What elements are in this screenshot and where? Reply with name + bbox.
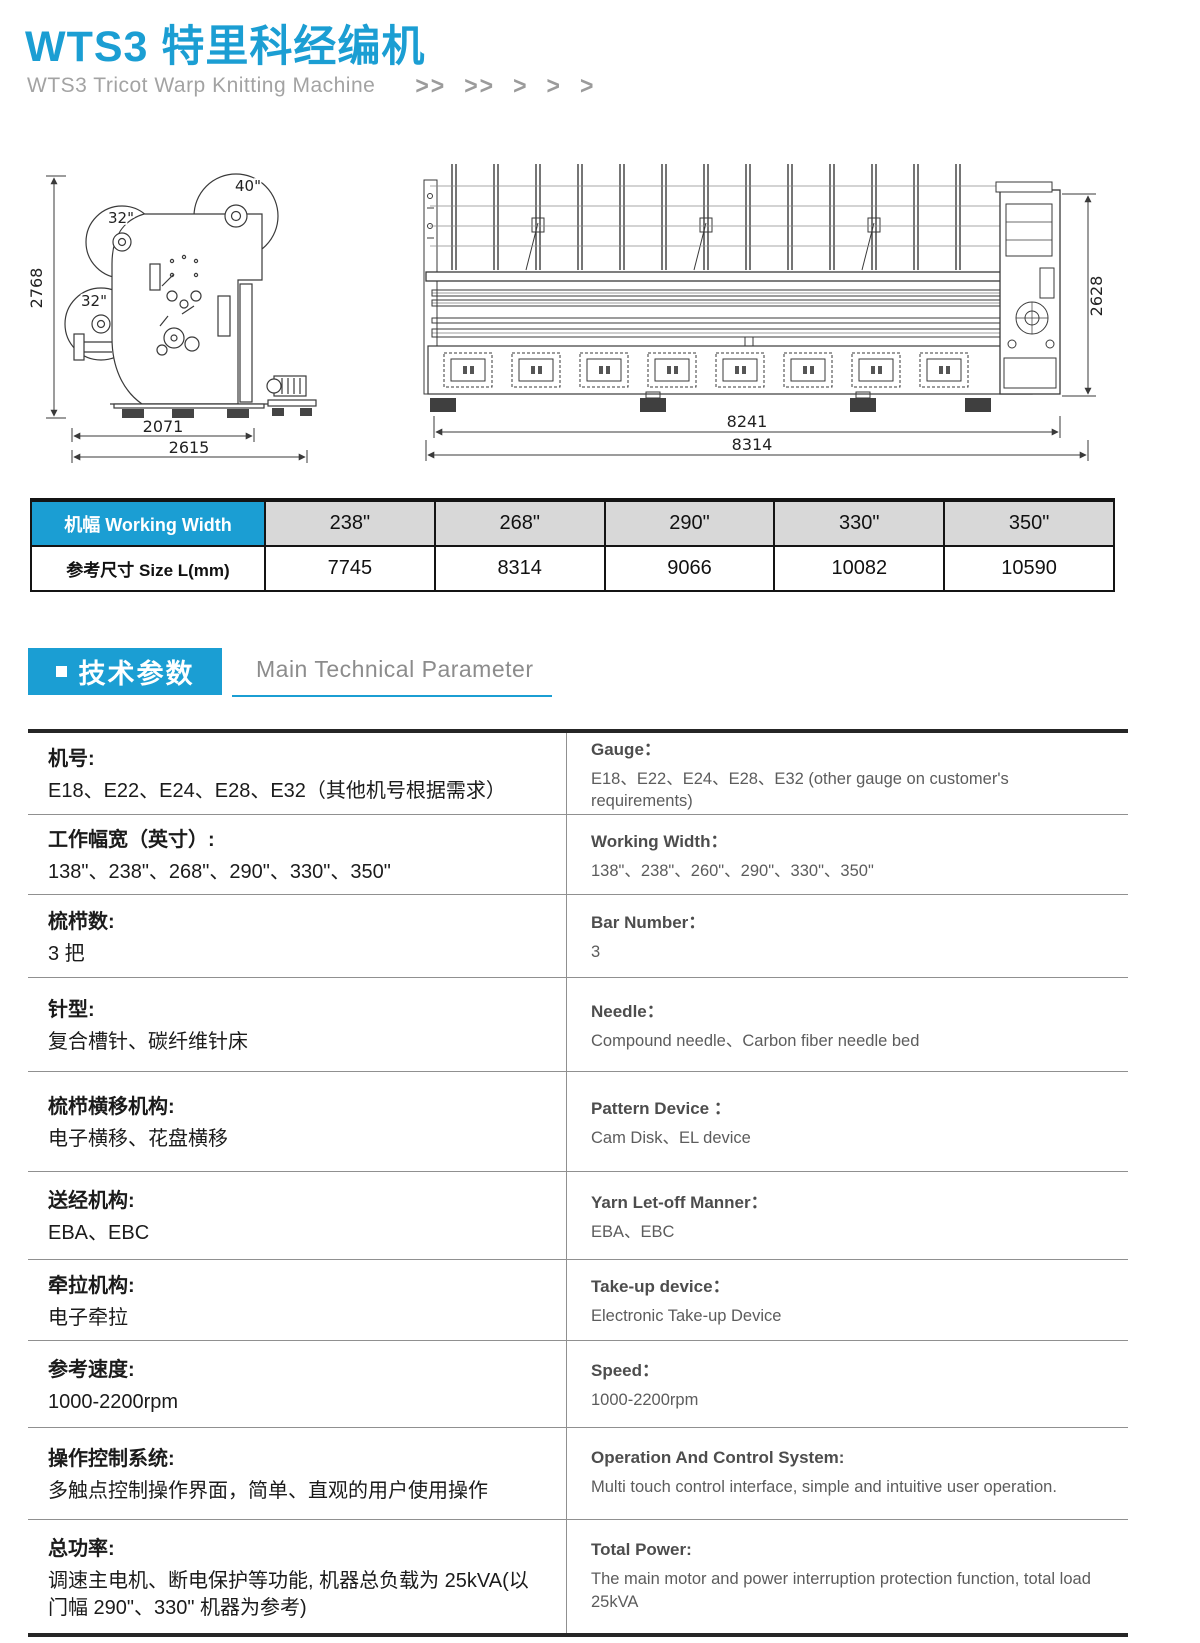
table-row: 送经机构: EBA、EBC Yarn Let-off Manner： EBA、E…: [28, 1172, 1128, 1260]
param-value-zh: 3 把: [48, 941, 540, 968]
param-label-en: Needle：: [591, 997, 1114, 1022]
param-cell-zh: 送经机构: EBA、EBC: [28, 1172, 567, 1259]
param-value-en: Electronic Take-up Device: [591, 1305, 1114, 1327]
size-value: 7745: [264, 547, 434, 590]
param-label-zh: 参考速度:: [48, 1353, 540, 1382]
param-value-zh: 138"、238"、268"、290"、330"、350": [48, 859, 540, 886]
param-label-en: Bar Number：: [591, 908, 1114, 933]
table-row: 操作控制系统: 多触点控制操作界面，简单、直观的用户使用操作 Operation…: [28, 1428, 1128, 1520]
param-cell-zh: 参考速度: 1000-2200rpm: [28, 1341, 567, 1427]
catalog-page: WTS3 特里科经编机 WTS3 Tricot Warp Knitting Ma…: [0, 0, 1200, 1643]
param-label-zh: 梳栉数:: [48, 905, 540, 934]
param-label-en: Total Power:: [591, 1540, 1114, 1560]
page-title: WTS3 特里科经编机: [25, 12, 425, 74]
chevron-right-icon: >: [513, 71, 528, 101]
table-row: 牵拉机构: 电子牵拉 Take-up device： Electronic Ta…: [28, 1260, 1128, 1341]
working-width-table: 机幅 Working Width 238" 268" 290" 330" 350…: [30, 498, 1115, 592]
working-width-value: 330": [773, 502, 943, 545]
technical-parameter-table: 机号: E18、E22、E24、E28、E32（其他机号根据需求） Gauge：…: [28, 729, 1128, 1637]
beam-size-label: 40": [235, 177, 261, 195]
param-label-en: Working Width：: [591, 827, 1114, 852]
param-value-zh: EBA、EBC: [48, 1220, 540, 1247]
chevron-right-icon: >: [580, 71, 595, 101]
param-value-zh: 电子牵拉: [48, 1305, 540, 1332]
size-row-header: 参考尺寸 Size L(mm): [32, 547, 264, 590]
param-cell-zh: 总功率: 调速主电机、断电保护等功能, 机器总负载为 25kVA(以门幅 290…: [28, 1520, 567, 1633]
chevron-right-icon: >>: [464, 71, 495, 101]
param-cell-zh: 操作控制系统: 多触点控制操作界面，简单、直观的用户使用操作: [28, 1428, 567, 1519]
param-value-zh: 1000-2200rpm: [48, 1389, 540, 1416]
dimension-label-width-inner: 8241: [727, 412, 768, 431]
param-value-zh: 电子横移、花盘横移: [48, 1126, 540, 1153]
dimension-label-width-inner: 2071: [143, 417, 184, 436]
param-value-en: Multi touch control interface, simple an…: [591, 1476, 1114, 1498]
param-value-en: EBA、EBC: [591, 1221, 1114, 1243]
param-cell-en: Take-up device： Electronic Take-up Devic…: [567, 1260, 1128, 1340]
param-cell-zh: 牵拉机构: 电子牵拉: [28, 1260, 567, 1340]
page-subtitle: WTS3 Tricot Warp Knitting Machine: [27, 74, 375, 98]
param-value-zh: 多触点控制操作界面，简单、直观的用户使用操作: [48, 1478, 540, 1505]
dimension-label-height: 2768: [27, 268, 46, 309]
param-label-en: Speed：: [591, 1356, 1114, 1381]
param-cell-en: Bar Number： 3: [567, 895, 1128, 977]
table-row: 针型: 复合槽针、碳纤维针床 Needle： Compound needle、C…: [28, 978, 1128, 1072]
param-cell-zh: 工作幅宽（英寸）: 138"、238"、268"、290"、330"、350": [28, 815, 567, 894]
param-label-en: Gauge：: [591, 735, 1114, 760]
side-view-diagram: 40" 32" 32" 2768 2071 2615: [22, 146, 374, 471]
param-value-en: Cam Disk、EL device: [591, 1127, 1114, 1149]
beam-size-label: 32": [81, 292, 107, 310]
working-width-value: 350": [943, 502, 1113, 545]
param-label-zh: 工作幅宽（英寸）:: [48, 823, 540, 852]
param-label-en: Yarn Let-off Manner：: [591, 1188, 1114, 1213]
beam-size-label: 32": [108, 209, 134, 227]
table-row: 梳栉横移机构: 电子横移、花盘横移 Pattern Device ： Cam D…: [28, 1072, 1128, 1172]
param-cell-en: Pattern Device ： Cam Disk、EL device: [567, 1072, 1128, 1171]
working-width-value: 290": [604, 502, 774, 545]
param-value-zh: E18、E22、E24、E28、E32（其他机号根据需求）: [48, 778, 540, 805]
chevron-right-icon: >: [547, 71, 562, 101]
param-value-zh: 复合槽针、碳纤维针床: [48, 1029, 540, 1056]
section-title-en: Main Technical Parameter: [256, 656, 533, 683]
table-row: 机号: E18、E22、E24、E28、E32（其他机号根据需求） Gauge：…: [28, 733, 1128, 815]
param-cell-en: Working Width： 138"、238"、260"、290"、330"、…: [567, 815, 1128, 894]
chevron-right-icon: >>: [415, 71, 446, 101]
param-label-en: Operation And Control System:: [591, 1448, 1114, 1468]
param-value-en: E18、E22、E24、E28、E32 (other gauge on cust…: [591, 768, 1114, 813]
section-title-zh: 技术参数: [79, 652, 195, 691]
param-cell-zh: 机号: E18、E22、E24、E28、E32（其他机号根据需求）: [28, 733, 567, 814]
param-label-en: Pattern Device ：: [591, 1094, 1114, 1119]
param-label-zh: 送经机构:: [48, 1184, 540, 1213]
param-cell-en: Needle： Compound needle、Carbon fiber nee…: [567, 978, 1128, 1071]
param-cell-en: Total Power: The main motor and power in…: [567, 1520, 1128, 1633]
working-width-header: 机幅 Working Width: [32, 502, 264, 545]
param-label-zh: 梳栉横移机构:: [48, 1090, 540, 1119]
table-row: 参考尺寸 Size L(mm) 7745 8314 9066 10082 105…: [32, 545, 1113, 590]
param-label-zh: 牵拉机构:: [48, 1269, 540, 1298]
param-label-zh: 总功率:: [48, 1532, 540, 1561]
working-width-value: 238": [264, 502, 434, 545]
dimension-label-width-outer: 2615: [169, 438, 210, 457]
size-value: 10590: [943, 547, 1113, 590]
param-cell-en: Gauge： E18、E22、E24、E28、E32 (other gauge …: [567, 733, 1128, 814]
param-value-en: 138"、238"、260"、290"、330"、350": [591, 860, 1114, 882]
param-cell-zh: 针型: 复合槽针、碳纤维针床: [28, 978, 567, 1071]
working-width-value: 268": [434, 502, 604, 545]
param-cell-zh: 梳栉横移机构: 电子横移、花盘横移: [28, 1072, 567, 1171]
table-row: 参考速度: 1000-2200rpm Speed： 1000-2200rpm: [28, 1341, 1128, 1428]
param-value-en: Compound needle、Carbon fiber needle bed: [591, 1030, 1114, 1052]
section-badge: 技术参数: [28, 648, 222, 695]
dimension-label-height: 2628: [1087, 276, 1106, 317]
param-cell-en: Yarn Let-off Manner： EBA、EBC: [567, 1172, 1128, 1259]
table-row: 总功率: 调速主电机、断电保护等功能, 机器总负载为 25kVA(以门幅 290…: [28, 1520, 1128, 1633]
param-cell-en: Operation And Control System: Multi touc…: [567, 1428, 1128, 1519]
param-cell-zh: 梳栉数: 3 把: [28, 895, 567, 977]
table-row: 梳栉数: 3 把 Bar Number： 3: [28, 895, 1128, 978]
page-subtitle-row: WTS3 Tricot Warp Knitting Machine >> >> …: [27, 72, 613, 99]
param-value-zh: 调速主电机、断电保护等功能, 机器总负载为 25kVA(以门幅 290"、330…: [48, 1568, 540, 1622]
param-label-zh: 操作控制系统:: [48, 1442, 540, 1471]
param-label-en: Take-up device：: [591, 1272, 1114, 1297]
section-underline: [232, 695, 552, 697]
param-value-en: 3: [591, 941, 1114, 963]
param-label-zh: 机号:: [48, 742, 540, 771]
table-row: 工作幅宽（英寸）: 138"、238"、268"、290"、330"、350" …: [28, 815, 1128, 895]
size-value: 10082: [773, 547, 943, 590]
size-value: 9066: [604, 547, 774, 590]
param-cell-en: Speed： 1000-2200rpm: [567, 1341, 1128, 1427]
size-value: 8314: [434, 547, 604, 590]
dimension-label-width-outer: 8314: [732, 435, 773, 454]
chevron-decoration: >> >> > > >: [415, 72, 613, 99]
front-view-diagram: 2628 8241 8314: [400, 148, 1115, 473]
param-value-en: 1000-2200rpm: [591, 1389, 1114, 1411]
square-bullet-icon: [56, 666, 67, 677]
table-row: 机幅 Working Width 238" 268" 290" 330" 350…: [32, 502, 1113, 545]
param-label-zh: 针型:: [48, 993, 540, 1022]
param-value-en: The main motor and power interruption pr…: [591, 1568, 1114, 1613]
